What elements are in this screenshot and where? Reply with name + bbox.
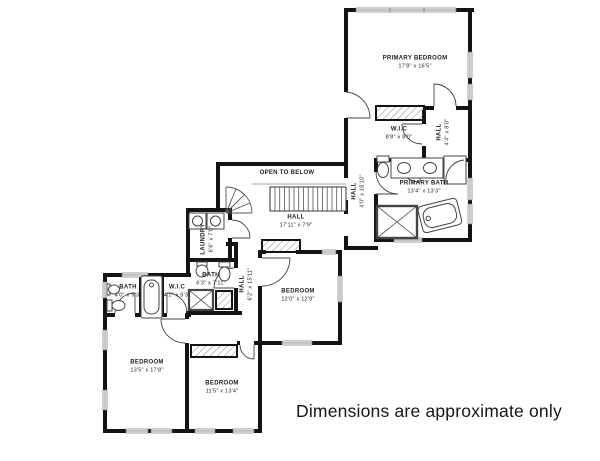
- shower-icon-bath-hall: [189, 290, 213, 310]
- corner-cabinet-icon: [444, 156, 466, 184]
- door-laundry: [232, 220, 250, 238]
- bathtub-icon-primary: [417, 198, 462, 234]
- door-bedroom-right: [262, 258, 290, 286]
- staircase: [252, 184, 346, 211]
- washer-dryer-icon: [189, 213, 224, 229]
- door-wic-left: [167, 293, 187, 313]
- disclaimer-text: Dimensions are approximate only: [296, 401, 562, 422]
- closet-bedroom-mid: [191, 345, 237, 357]
- floor-plan-drawing: [0, 0, 600, 461]
- spiral-staircase: [226, 187, 252, 213]
- closet-bath-hall: [216, 291, 232, 309]
- door-primary-closet: [434, 84, 456, 106]
- door-primary-bedroom: [346, 92, 370, 118]
- floor-plan: PRIMARY BEDROOM 17'8" x 16'5" W.I.C 8'8"…: [0, 0, 600, 461]
- toilet-icon-bath-hall: [219, 262, 230, 281]
- door-primary-wic: [402, 124, 422, 144]
- sink-icon-bath-hall: [196, 262, 208, 277]
- toilet-icon-primary: [377, 156, 389, 178]
- double-vanity-icon: [391, 158, 443, 178]
- toilet-icon-bath-left: [107, 300, 125, 311]
- sink-icon-bath-left: [107, 284, 120, 295]
- door-bedroom-left: [161, 319, 185, 343]
- door-bedroom-mid: [240, 345, 254, 359]
- closet-primary-bedroom: [376, 106, 424, 120]
- shower-icon-primary: [377, 206, 417, 238]
- bathtub-icon-left: [141, 276, 162, 318]
- closet-bedroom-right: [262, 240, 300, 252]
- walls: [103, 8, 474, 433]
